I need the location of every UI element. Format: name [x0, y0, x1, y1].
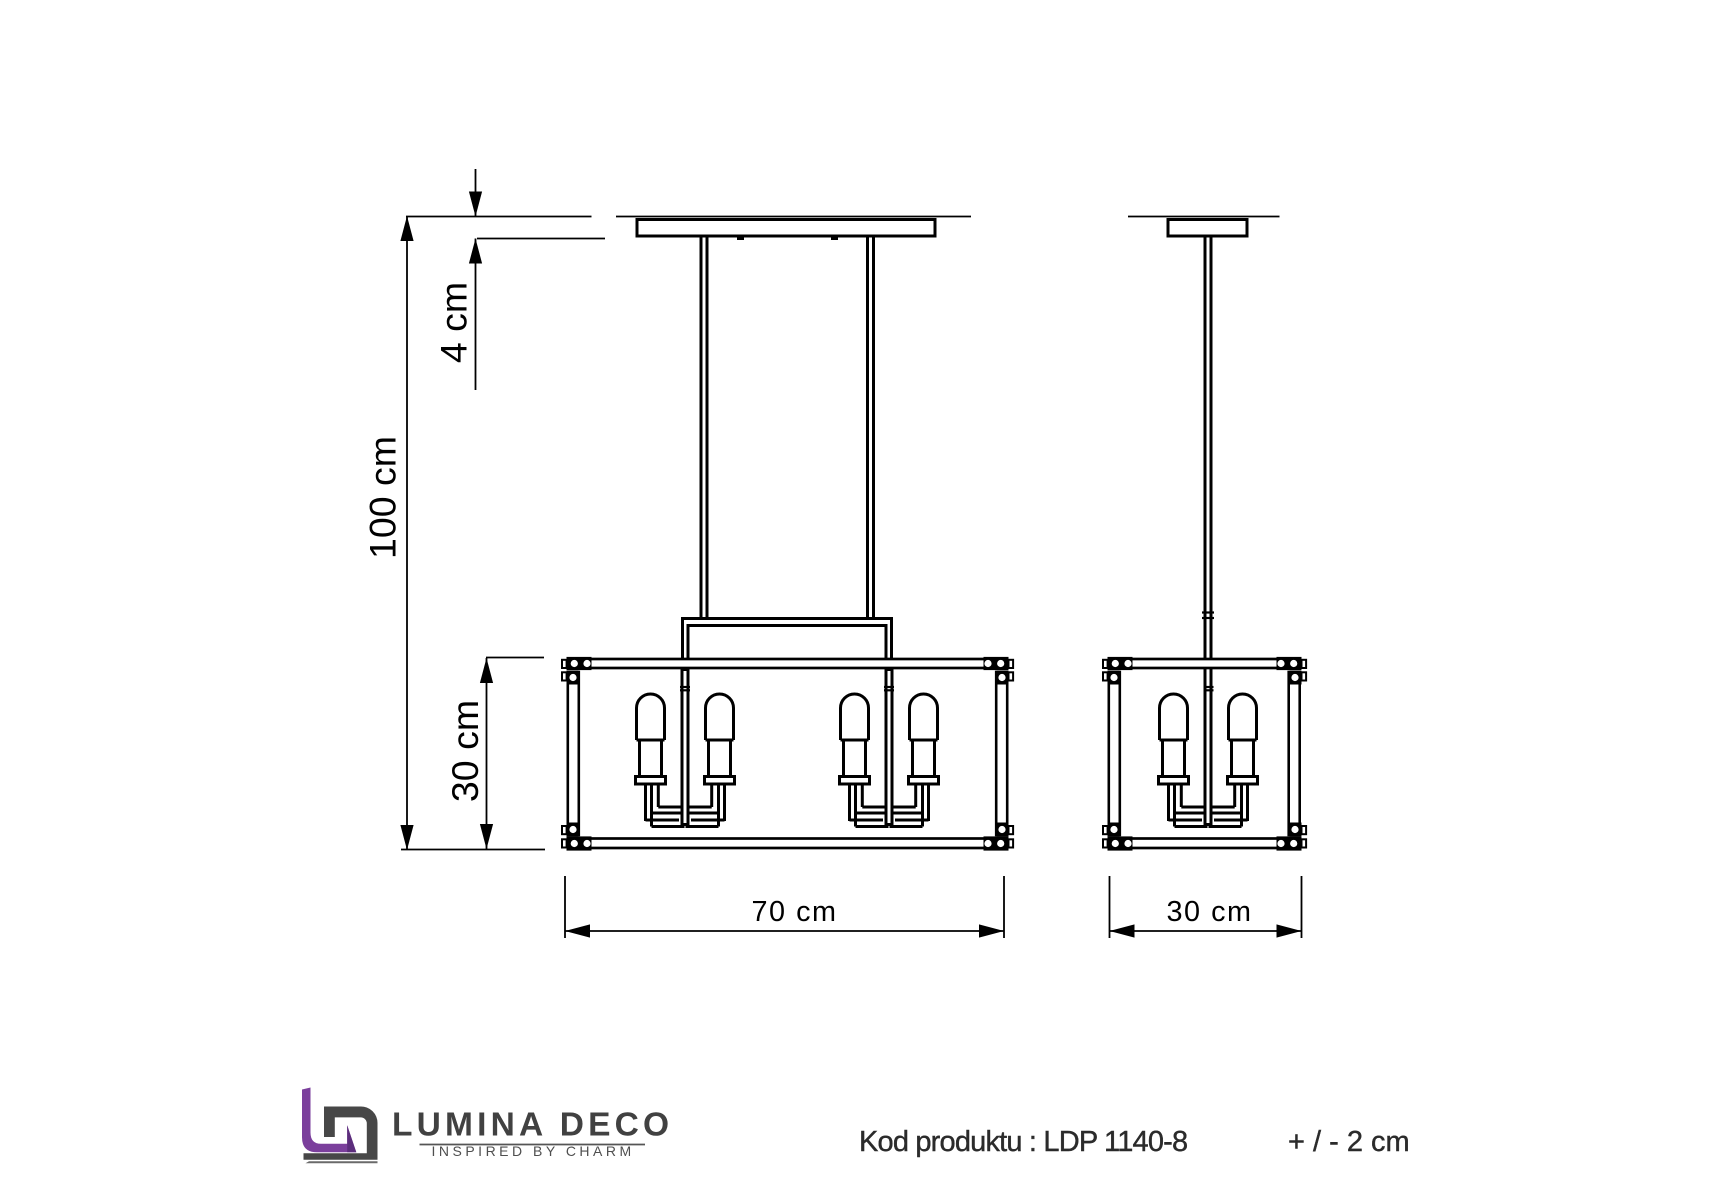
svg-text:30 cm: 30 cm	[444, 700, 486, 802]
svg-text:LUMINA DECO: LUMINA DECO	[392, 1107, 673, 1144]
svg-text:100 cm: 100 cm	[362, 436, 404, 559]
svg-text:4 cm: 4 cm	[433, 282, 475, 363]
svg-text:70 cm: 70 cm	[752, 896, 838, 928]
svg-text:Kod produktu : LDP 1140-8: Kod produktu : LDP 1140-8	[859, 1126, 1187, 1158]
svg-text:30 cm: 30 cm	[1167, 896, 1253, 928]
svg-text:INSPIRED BY CHARM: INSPIRED BY CHARM	[432, 1143, 635, 1159]
svg-text:+ / - 2 cm: + / - 2 cm	[1288, 1126, 1410, 1158]
